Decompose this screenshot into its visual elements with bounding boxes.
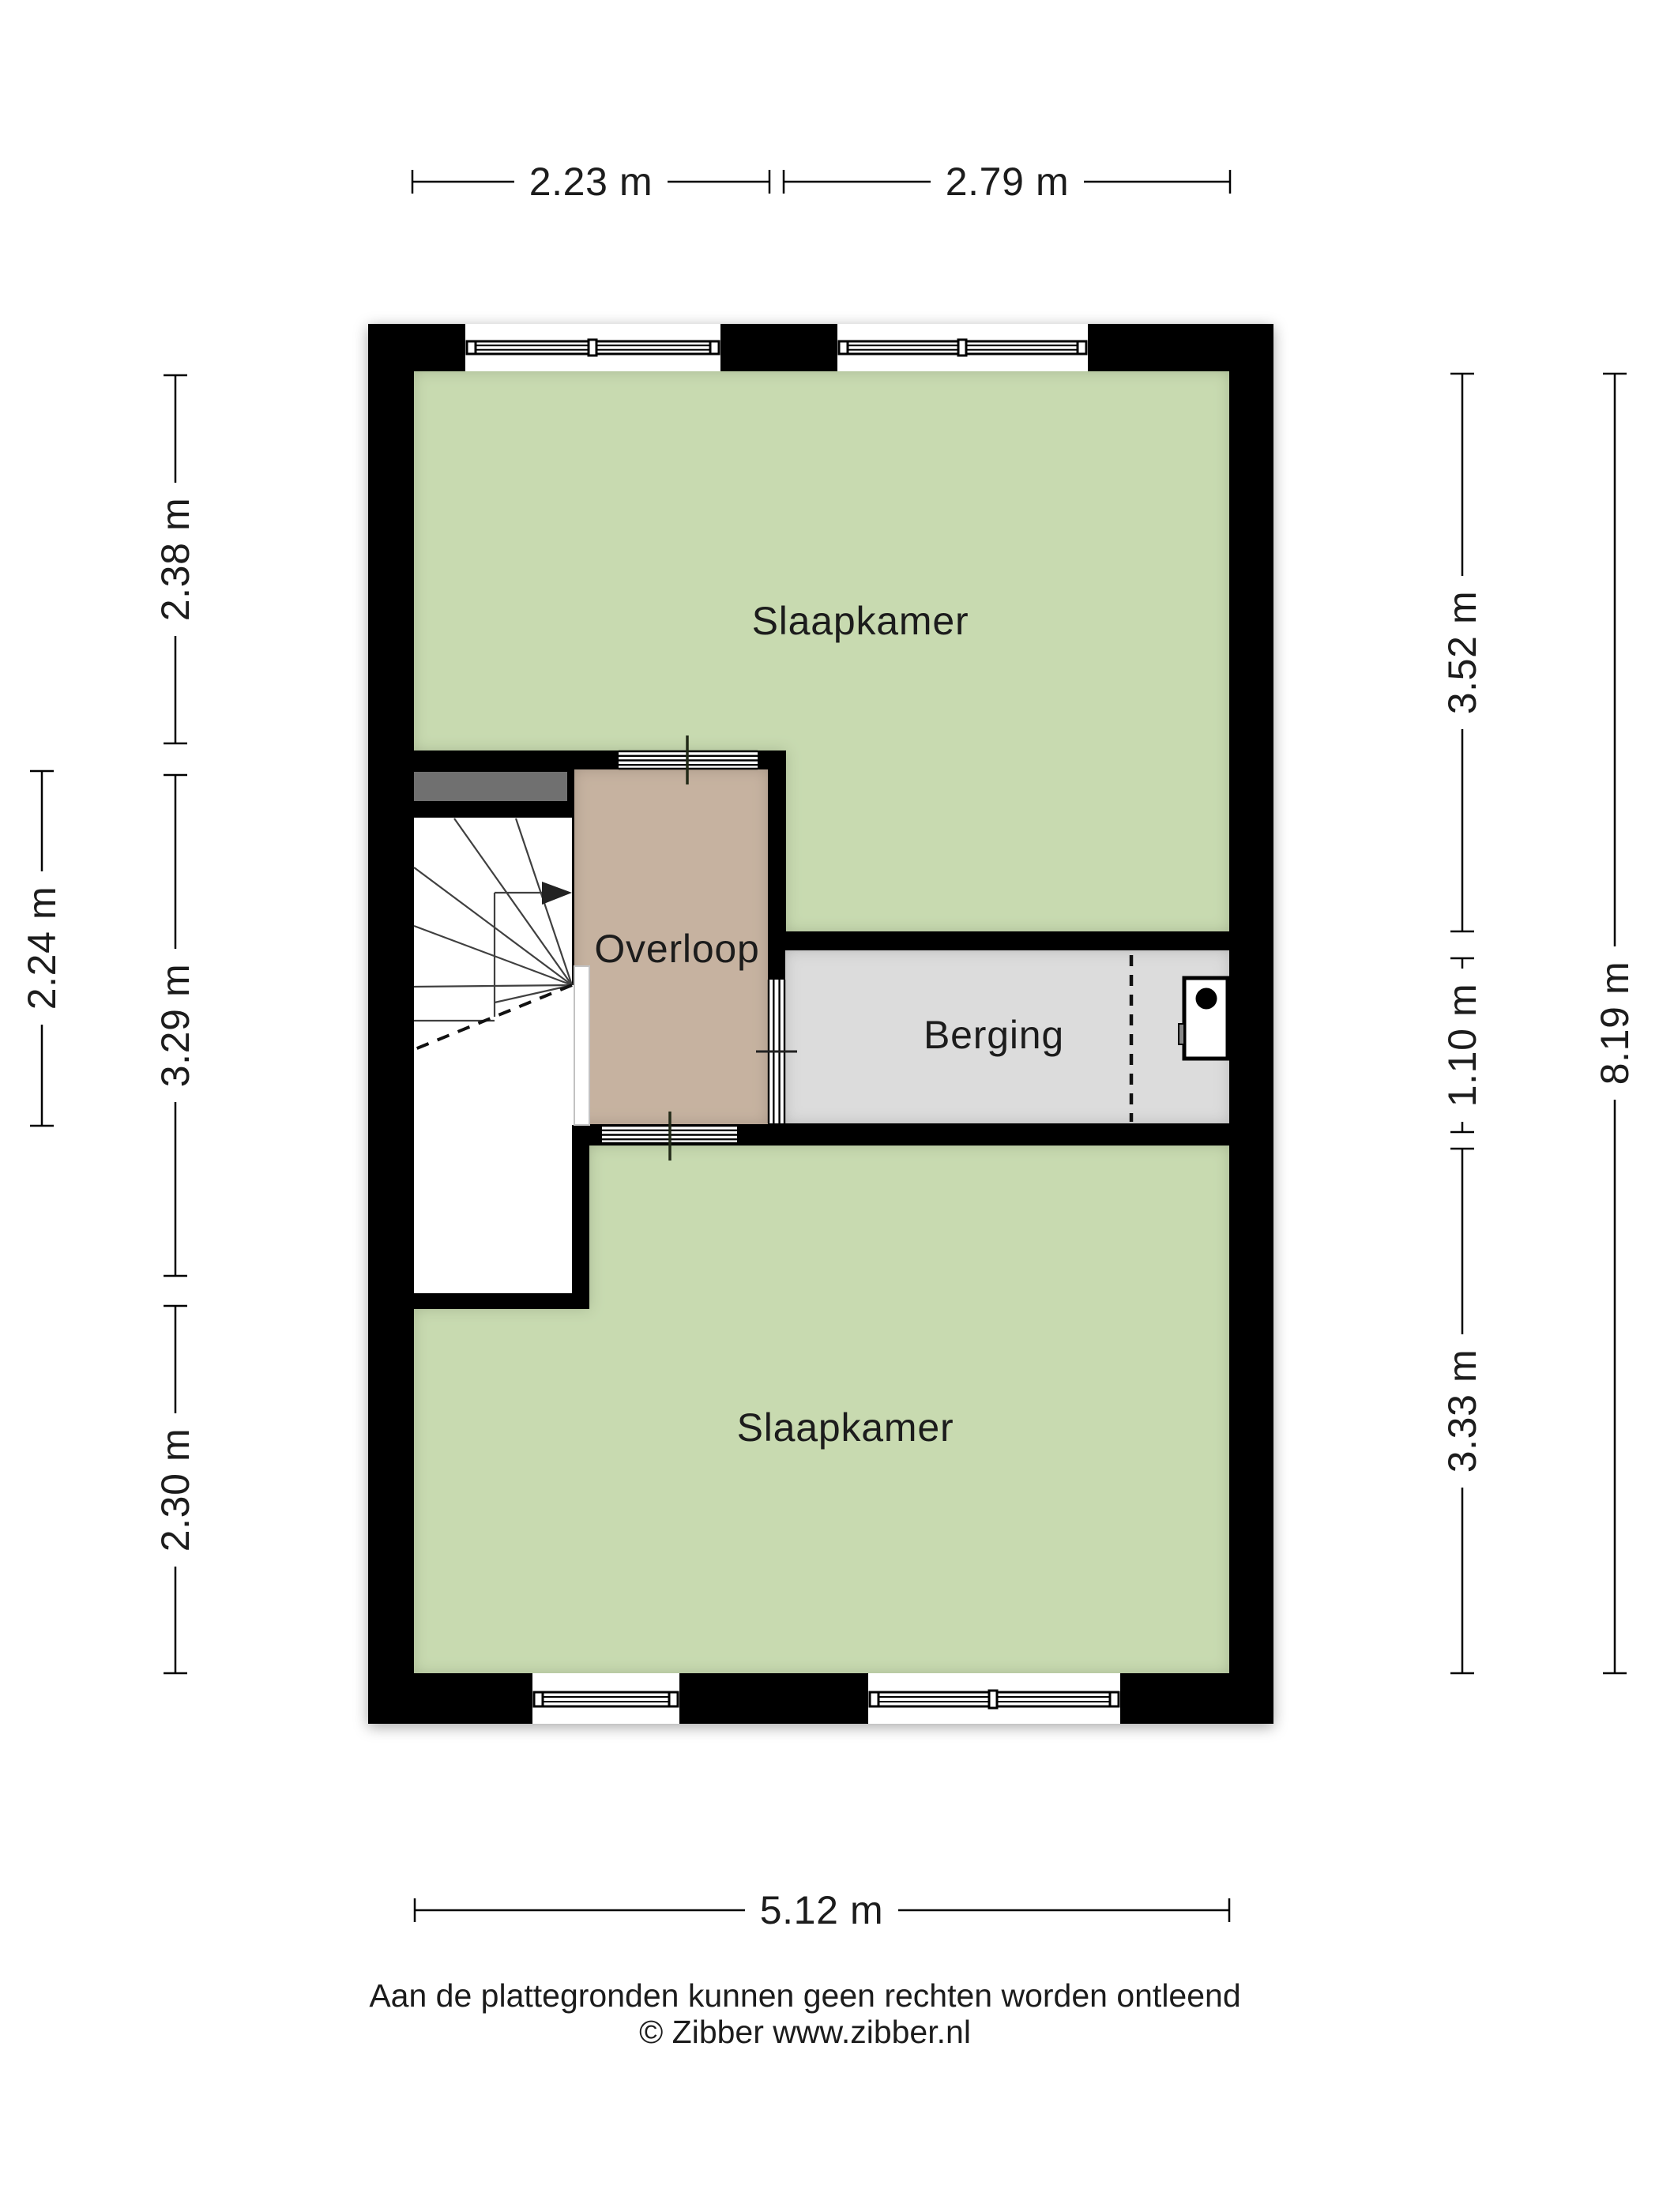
svg-text:1.10 m: 1.10 m (1440, 984, 1484, 1107)
svg-text:© Zibber www.zibber.nl: © Zibber www.zibber.nl (639, 2014, 971, 2050)
svg-text:3.33 m: 3.33 m (1440, 1349, 1484, 1473)
svg-text:8.19 m: 8.19 m (1593, 961, 1637, 1085)
svg-text:3.29 m: 3.29 m (153, 964, 197, 1087)
svg-text:Overloop: Overloop (594, 927, 759, 971)
svg-text:3.52 m: 3.52 m (1440, 591, 1484, 714)
svg-text:Berging: Berging (924, 1013, 1064, 1057)
svg-text:2.38 m: 2.38 m (153, 498, 197, 621)
svg-text:2.79 m: 2.79 m (946, 160, 1069, 204)
svg-text:2.23 m: 2.23 m (529, 160, 653, 204)
svg-text:2.30 m: 2.30 m (153, 1428, 197, 1552)
svg-text:2.24 m: 2.24 m (20, 886, 64, 1010)
svg-text:Slaapkamer: Slaapkamer (737, 1405, 954, 1450)
svg-text:Aan de plattegronden kunnen ge: Aan de plattegronden kunnen geen rechten… (369, 1977, 1240, 2014)
svg-text:5.12 m: 5.12 m (760, 1888, 883, 1932)
svg-text:Slaapkamer: Slaapkamer (752, 599, 969, 643)
